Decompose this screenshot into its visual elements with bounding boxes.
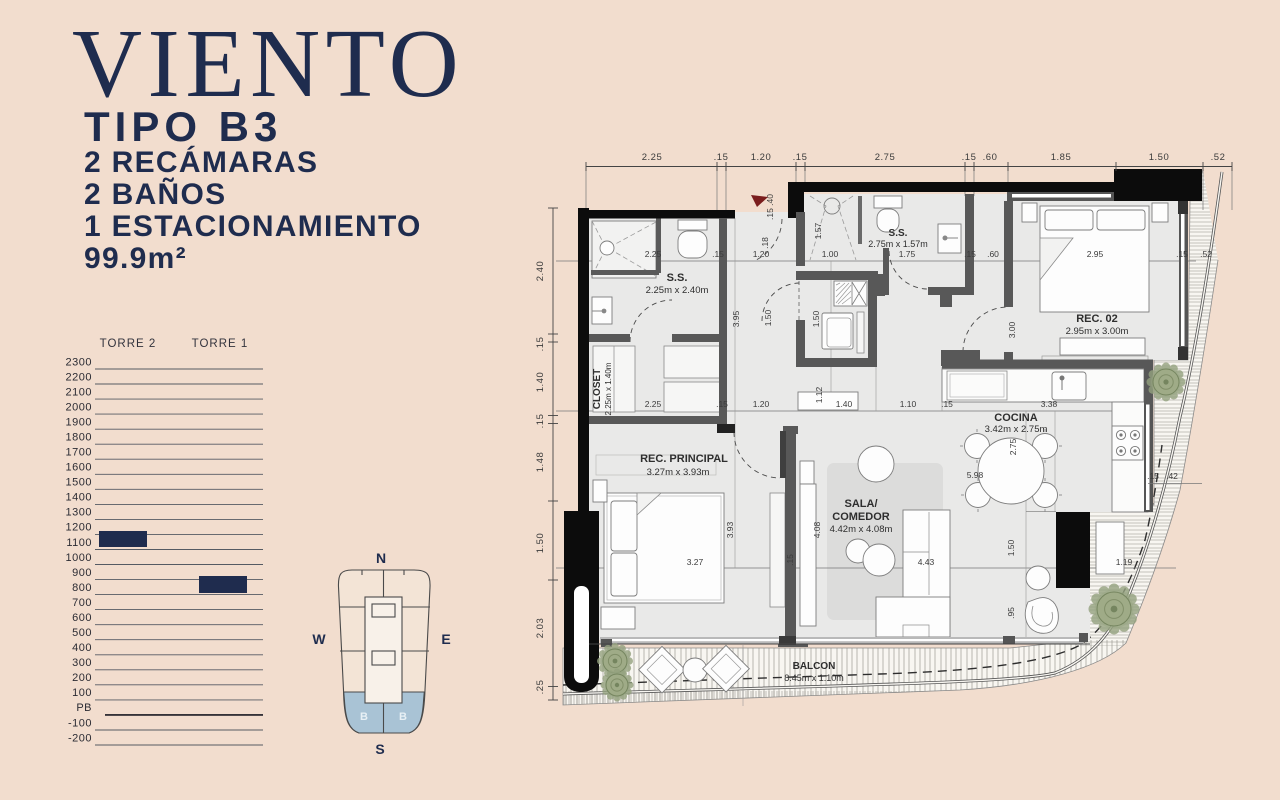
svg-text:4.08: 4.08 — [812, 521, 822, 538]
svg-text:1900: 1900 — [66, 417, 92, 429]
svg-text:CLOSET: CLOSET — [592, 369, 603, 410]
svg-text:REC. 02: REC. 02 — [1076, 313, 1118, 325]
svg-text:800: 800 — [72, 582, 92, 594]
svg-text:1700: 1700 — [66, 447, 92, 459]
svg-text:1.12: 1.12 — [814, 386, 824, 403]
svg-text:BALCON: BALCON — [793, 661, 836, 672]
svg-text:SALA/: SALA/ — [845, 498, 878, 510]
svg-text:100: 100 — [72, 687, 92, 699]
svg-text:3.95: 3.95 — [731, 310, 741, 327]
svg-text:2100: 2100 — [66, 386, 92, 398]
svg-text:8.45m x 1.10m: 8.45m x 1.10m — [784, 673, 844, 683]
svg-text:.15: .15 — [714, 152, 729, 163]
svg-text:1.75: 1.75 — [899, 249, 916, 259]
svg-text:1.57: 1.57 — [813, 222, 823, 239]
svg-text:.15: .15 — [785, 554, 795, 566]
svg-text:N: N — [376, 550, 386, 566]
svg-text:1.20: 1.20 — [751, 152, 772, 163]
svg-text:4.42m x 4.08m: 4.42m x 4.08m — [830, 524, 893, 535]
svg-text:.18: .18 — [760, 237, 770, 249]
svg-text:-200: -200 — [68, 732, 92, 744]
svg-text:700: 700 — [72, 597, 92, 609]
svg-text:S: S — [375, 741, 384, 757]
svg-text:1300: 1300 — [66, 507, 92, 519]
svg-text:1.20: 1.20 — [753, 249, 770, 259]
svg-text:3.27: 3.27 — [687, 557, 704, 567]
svg-text:COCINA: COCINA — [994, 412, 1037, 424]
svg-text:.15: .15 — [1176, 249, 1188, 259]
svg-text:PB: PB — [76, 702, 92, 714]
svg-text:.60: .60 — [987, 249, 999, 259]
svg-text:.15: .15 — [712, 249, 724, 259]
svg-text:2.25: 2.25 — [642, 152, 663, 163]
svg-text:S.S.: S.S. — [889, 228, 908, 239]
svg-text:3.27m x 3.93m: 3.27m x 3.93m — [647, 467, 710, 478]
svg-text:.95: .95 — [1006, 607, 1016, 619]
svg-text:2200: 2200 — [66, 371, 92, 383]
svg-text:4.43: 4.43 — [918, 557, 935, 567]
svg-text:.15: .15 — [964, 249, 976, 259]
svg-text:1.40: 1.40 — [836, 399, 853, 409]
svg-text:TORRE 1: TORRE 1 — [192, 338, 249, 350]
svg-text:1500: 1500 — [66, 477, 92, 489]
svg-text:1200: 1200 — [66, 522, 92, 534]
svg-text:.60: .60 — [983, 152, 998, 163]
svg-text:2.75: 2.75 — [875, 152, 896, 163]
svg-text:.15: .15 — [941, 399, 953, 409]
svg-text:400: 400 — [72, 642, 92, 654]
svg-text:.52: .52 — [1211, 152, 1226, 163]
svg-text:.52: .52 — [1200, 249, 1212, 259]
svg-text:2.95: 2.95 — [1087, 249, 1104, 259]
svg-text:500: 500 — [72, 627, 92, 639]
svg-text:1.19: 1.19 — [1116, 557, 1133, 567]
svg-text:W: W — [312, 631, 326, 647]
svg-text:-100: -100 — [68, 717, 92, 729]
svg-text:1.50: 1.50 — [535, 533, 546, 554]
svg-text:1800: 1800 — [66, 432, 92, 444]
svg-text:3.00: 3.00 — [1007, 321, 1017, 338]
svg-text:.25: .25 — [535, 680, 546, 695]
svg-text:2.40: 2.40 — [535, 261, 546, 282]
svg-text:1000: 1000 — [66, 552, 92, 564]
svg-text:2.25: 2.25 — [645, 249, 662, 259]
svg-text:.15: .15 — [962, 152, 977, 163]
svg-text:3.42m x 2.75m: 3.42m x 2.75m — [985, 424, 1048, 435]
svg-text:.15: .15 — [716, 399, 728, 409]
svg-text:1.40: 1.40 — [535, 372, 546, 393]
svg-text:2.25: 2.25 — [645, 399, 662, 409]
svg-text:1.48: 1.48 — [535, 452, 546, 473]
svg-text:1600: 1600 — [66, 462, 92, 474]
svg-text:2.03: 2.03 — [535, 618, 546, 639]
svg-text:3.93: 3.93 — [725, 521, 735, 538]
svg-text:1.50: 1.50 — [811, 310, 821, 327]
svg-text:900: 900 — [72, 567, 92, 579]
svg-text:S.S.: S.S. — [667, 272, 688, 284]
svg-text:2.25m x 2.40m: 2.25m x 2.40m — [646, 285, 709, 296]
svg-text:B: B — [399, 711, 407, 723]
svg-text:E: E — [441, 631, 450, 647]
svg-text:1.50: 1.50 — [1149, 152, 1170, 163]
svg-text:2300: 2300 — [66, 356, 92, 368]
svg-text:1.85: 1.85 — [1051, 152, 1072, 163]
svg-text:.15: .15 — [1147, 471, 1159, 481]
svg-text:COMEDOR: COMEDOR — [832, 511, 890, 523]
svg-text:2.75m x 1.57m: 2.75m x 1.57m — [868, 239, 928, 249]
svg-text:5.98: 5.98 — [967, 470, 984, 480]
svg-text:1.10: 1.10 — [900, 399, 917, 409]
svg-text:REC. PRINCIPAL: REC. PRINCIPAL — [640, 453, 728, 465]
svg-text:1.50: 1.50 — [763, 309, 773, 326]
svg-text:1.50: 1.50 — [1006, 539, 1016, 556]
svg-text:2.25m x 1.40m: 2.25m x 1.40m — [604, 362, 613, 415]
svg-text:TORRE 2: TORRE 2 — [100, 338, 157, 350]
svg-text:3.38: 3.38 — [1041, 399, 1058, 409]
svg-text:1.00: 1.00 — [822, 249, 839, 259]
svg-text:2000: 2000 — [66, 401, 92, 413]
svg-text:.42: .42 — [1166, 471, 1178, 481]
svg-text:2.75: 2.75 — [1008, 438, 1018, 455]
svg-text:1100: 1100 — [66, 537, 92, 549]
svg-text:1400: 1400 — [66, 492, 92, 504]
svg-text:2.95m x 3.00m: 2.95m x 3.00m — [1066, 326, 1129, 337]
svg-text:300: 300 — [72, 657, 92, 669]
svg-text:1.20: 1.20 — [753, 399, 770, 409]
svg-text:B: B — [360, 711, 368, 723]
svg-text:600: 600 — [72, 612, 92, 624]
svg-text:.15: .15 — [535, 414, 546, 429]
svg-text:200: 200 — [72, 672, 92, 684]
svg-text:.15: .15 — [535, 337, 546, 352]
svg-text:.15: .15 — [793, 152, 808, 163]
